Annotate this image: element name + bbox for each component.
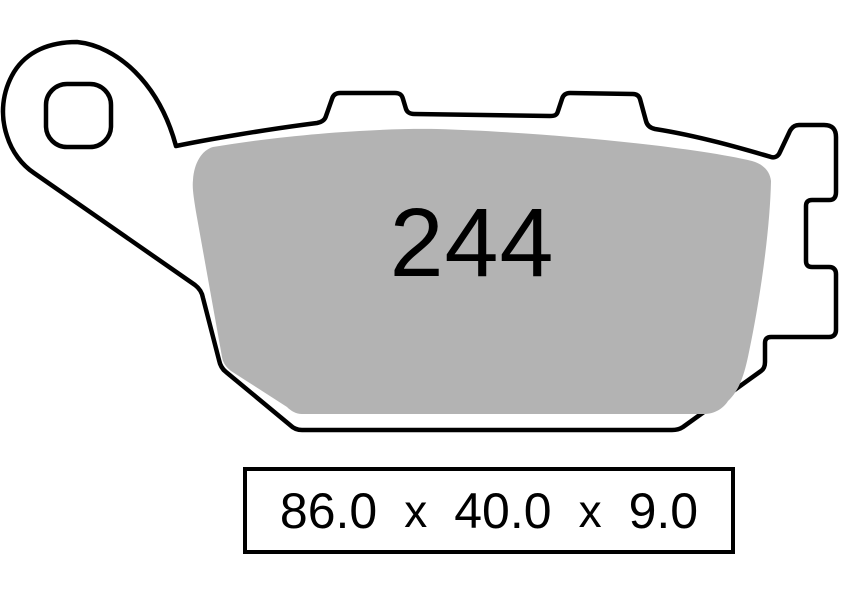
multiply-separator: x xyxy=(579,484,602,538)
dimensions-box: 86.0 x 40.0 x 9.0 xyxy=(243,467,735,554)
brake-pad-diagram: 244 86.0 x 40.0 x 9.0 xyxy=(0,0,842,595)
pad-number-label: 244 xyxy=(352,194,592,291)
dimension-width: 86.0 xyxy=(280,482,377,540)
multiply-separator: x xyxy=(404,484,427,538)
dimension-height: 40.0 xyxy=(454,482,551,540)
dimension-thickness: 9.0 xyxy=(629,482,699,540)
mounting-hole xyxy=(46,84,111,147)
